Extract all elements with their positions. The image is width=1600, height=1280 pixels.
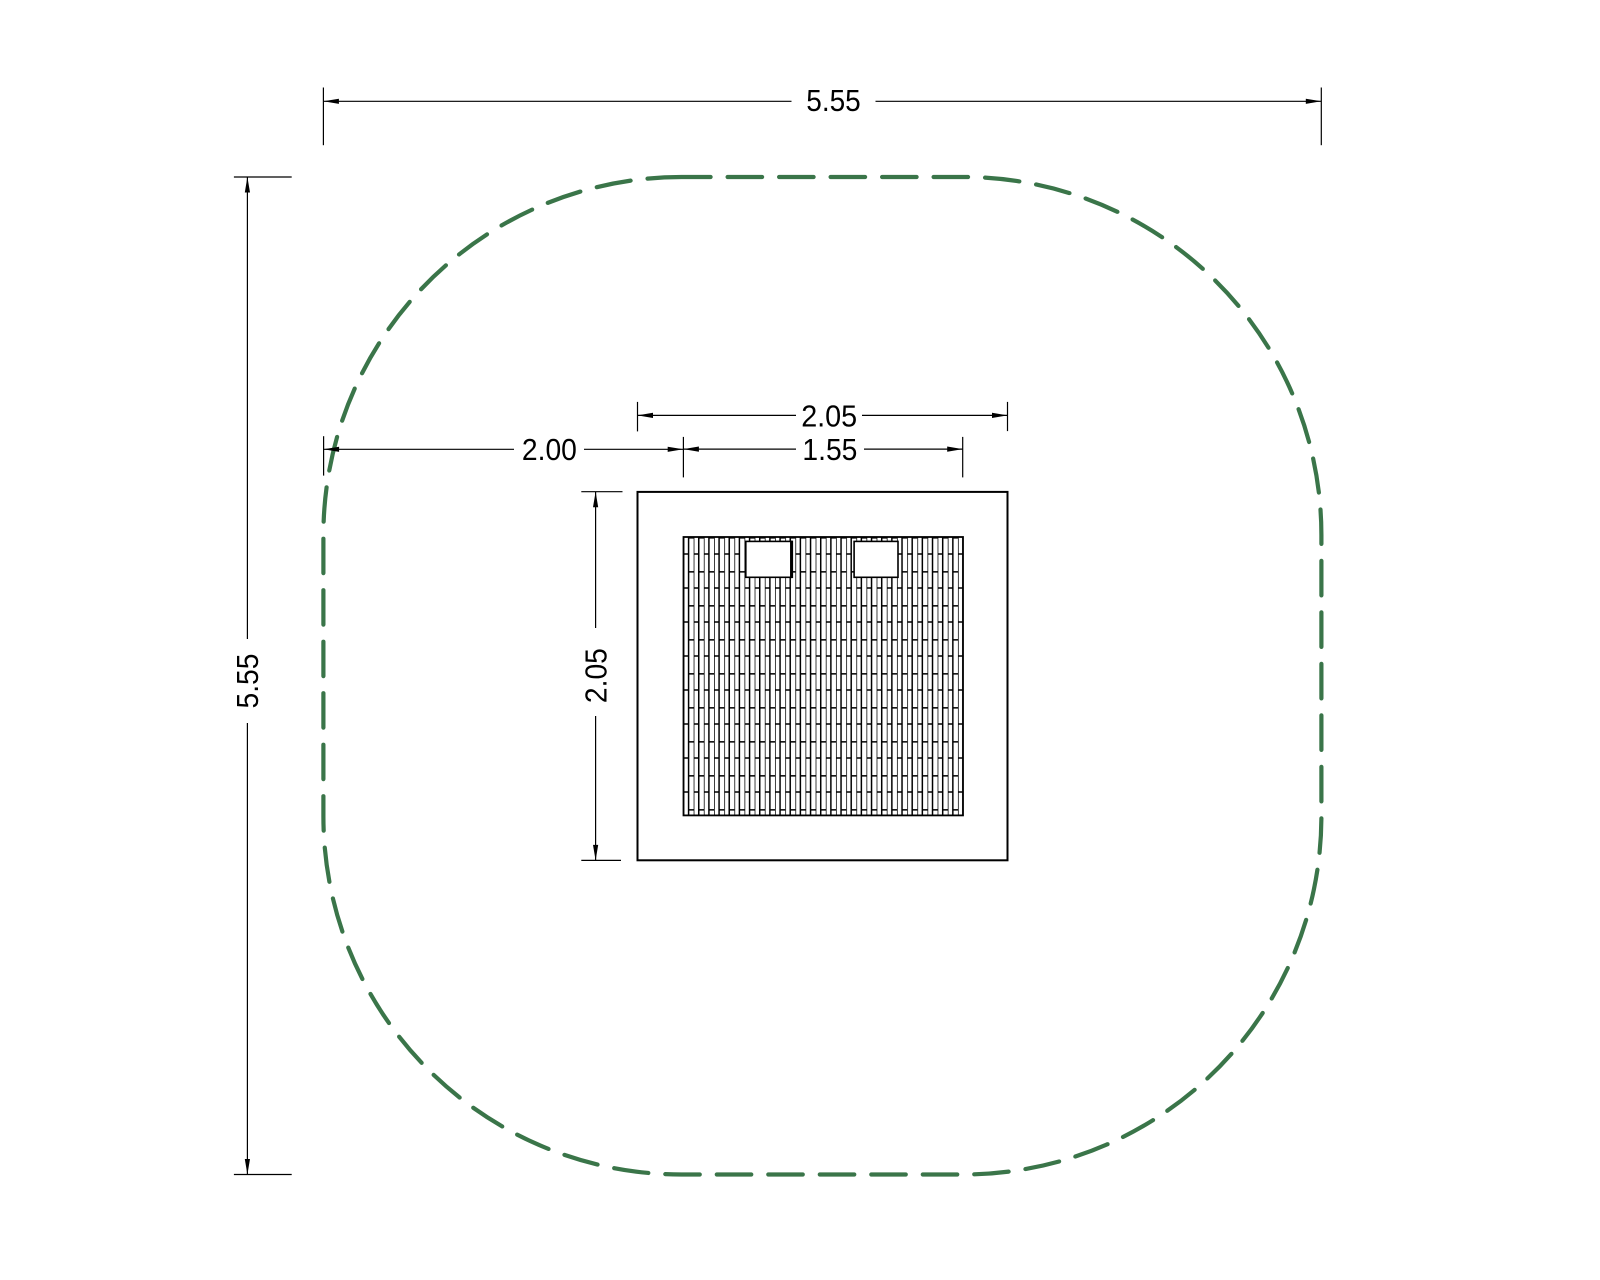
svg-text:2.05: 2.05: [579, 648, 613, 703]
svg-text:2.05: 2.05: [801, 400, 857, 434]
svg-text:5.55: 5.55: [806, 84, 861, 118]
svg-text:2.00: 2.00: [522, 433, 577, 467]
svg-text:5.55: 5.55: [231, 654, 265, 709]
svg-text:1.55: 1.55: [802, 433, 857, 467]
